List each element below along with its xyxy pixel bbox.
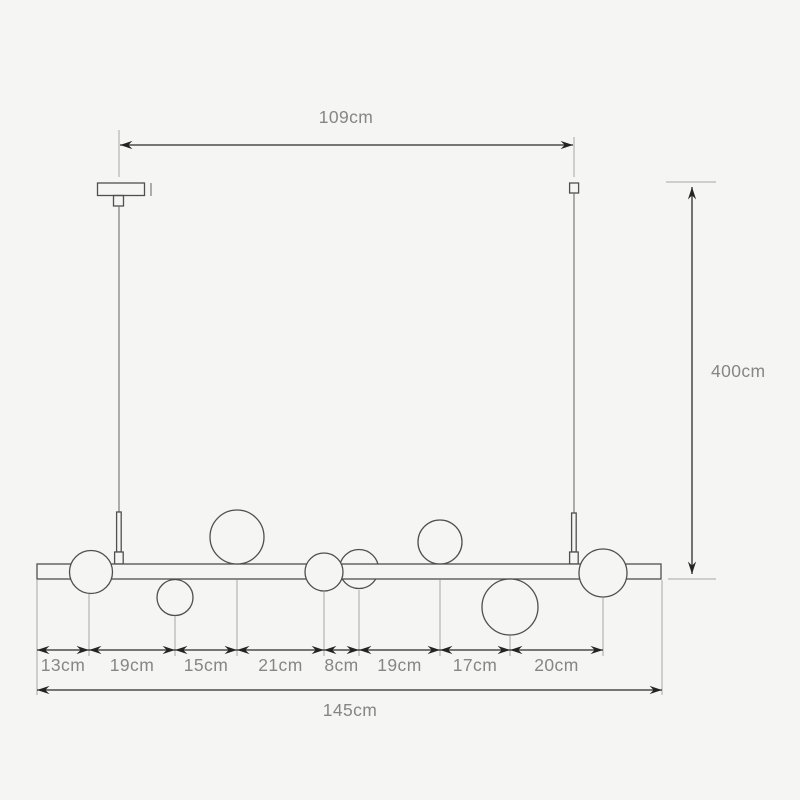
total-length-label: 145cm [323,700,378,720]
canvas-background [0,0,800,800]
segment-label: 17cm [453,655,497,675]
left-rod [117,512,122,552]
segment-label: 19cm [110,655,154,675]
segment-label: 15cm [184,655,228,675]
fixture-bar [37,564,661,579]
segment-label: 19cm [377,655,421,675]
glass-globe [70,551,113,594]
left-rod-connector [115,552,124,564]
top-span-label: 109cm [319,107,374,127]
segment-label: 8cm [324,655,358,675]
glass-globe [157,580,193,616]
drop-height-label: 400cm [711,361,766,381]
segment-label: 13cm [41,655,85,675]
segment-label: 21cm [258,655,302,675]
right-rod [572,513,577,552]
segment-label: 20cm [534,655,578,675]
glass-globe [482,579,538,635]
glass-globe [418,520,462,564]
glass-globe [210,510,264,564]
pendant-dimension-diagram: 109cm 400cm 13cm 19cm 15cm 21cm 8c [0,0,800,800]
glass-globe [305,553,343,591]
right-rod-connector [570,552,579,564]
glass-globe [579,549,627,597]
